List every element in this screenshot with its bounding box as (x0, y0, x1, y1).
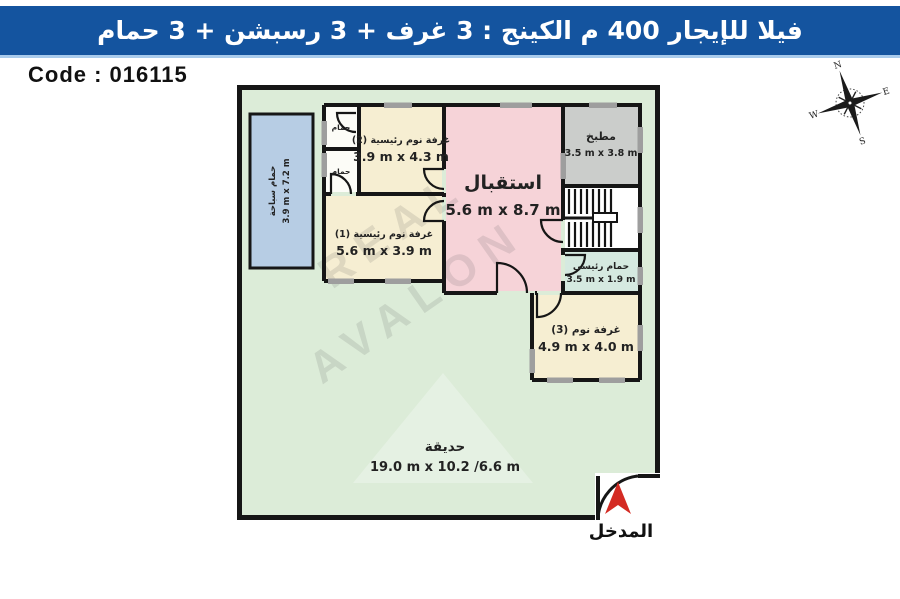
reception-dims: 5.6 m x 8.7 m (446, 201, 561, 219)
compass-needle-south (847, 102, 864, 136)
master-bath-name: حمام رئيسي (573, 262, 629, 272)
garden-name: حديقة (425, 439, 466, 455)
bed1-dims: 5.6 m x 3.9 m (336, 243, 432, 258)
floor-plan: REAL AVALON (237, 85, 660, 520)
compass-label-s: S (858, 136, 867, 147)
room-kitchen (565, 107, 638, 184)
bed3-dims: 4.9 m x 4.0 m (538, 339, 634, 354)
stairs-rail (593, 213, 617, 222)
svg-text:حمام سباحة: حمام سباحة (268, 166, 278, 217)
svg-text:3.9 m x 7.2 m: 3.9 m x 7.2 m (282, 158, 292, 223)
master-bath-dims: 3.5 m x 1.9 m (567, 275, 636, 285)
reception-name: استقبال (464, 172, 542, 194)
kitchen-name: مطبخ (586, 130, 616, 143)
bed3-name: غرفة نوم (3) (551, 324, 620, 336)
bath-bottom-label: حمام (332, 167, 351, 176)
entrance-notch (595, 473, 660, 520)
page-title: فيلا للإيجار 400 م الكينج : 3 غرف + 3 رس… (97, 16, 803, 45)
compass-rose-icon: N E S W (806, 56, 894, 148)
garden-dims: 19.0 m x 10.2 /6.6 m (370, 460, 520, 475)
title-bar: فيلا للإيجار 400 م الكينج : 3 غرف + 3 رس… (0, 6, 900, 58)
kitchen-dims: 3.5 m x 3.8 m (565, 148, 638, 159)
compass-needle-north (836, 70, 853, 104)
compass-hub (847, 100, 852, 105)
compass-label-w: W (808, 109, 821, 122)
bed1-name: غرفة نوم رئيسية (1) (335, 229, 433, 240)
compass-label-n: N (833, 60, 844, 72)
compass-needle-east (849, 89, 883, 106)
listing-code: Code : 016115 (28, 62, 188, 88)
bath-top-label: حمام (332, 123, 351, 132)
entrance-label: المدخل (566, 521, 676, 542)
room-bed3 (534, 295, 638, 378)
bed2-dims: 3.9 m x 4.3 m (353, 149, 449, 164)
bed2-name: غرفة نوم رئيسية (2) (352, 135, 450, 146)
compass-label-e: E (882, 86, 891, 98)
compass-needle-west (817, 100, 851, 117)
